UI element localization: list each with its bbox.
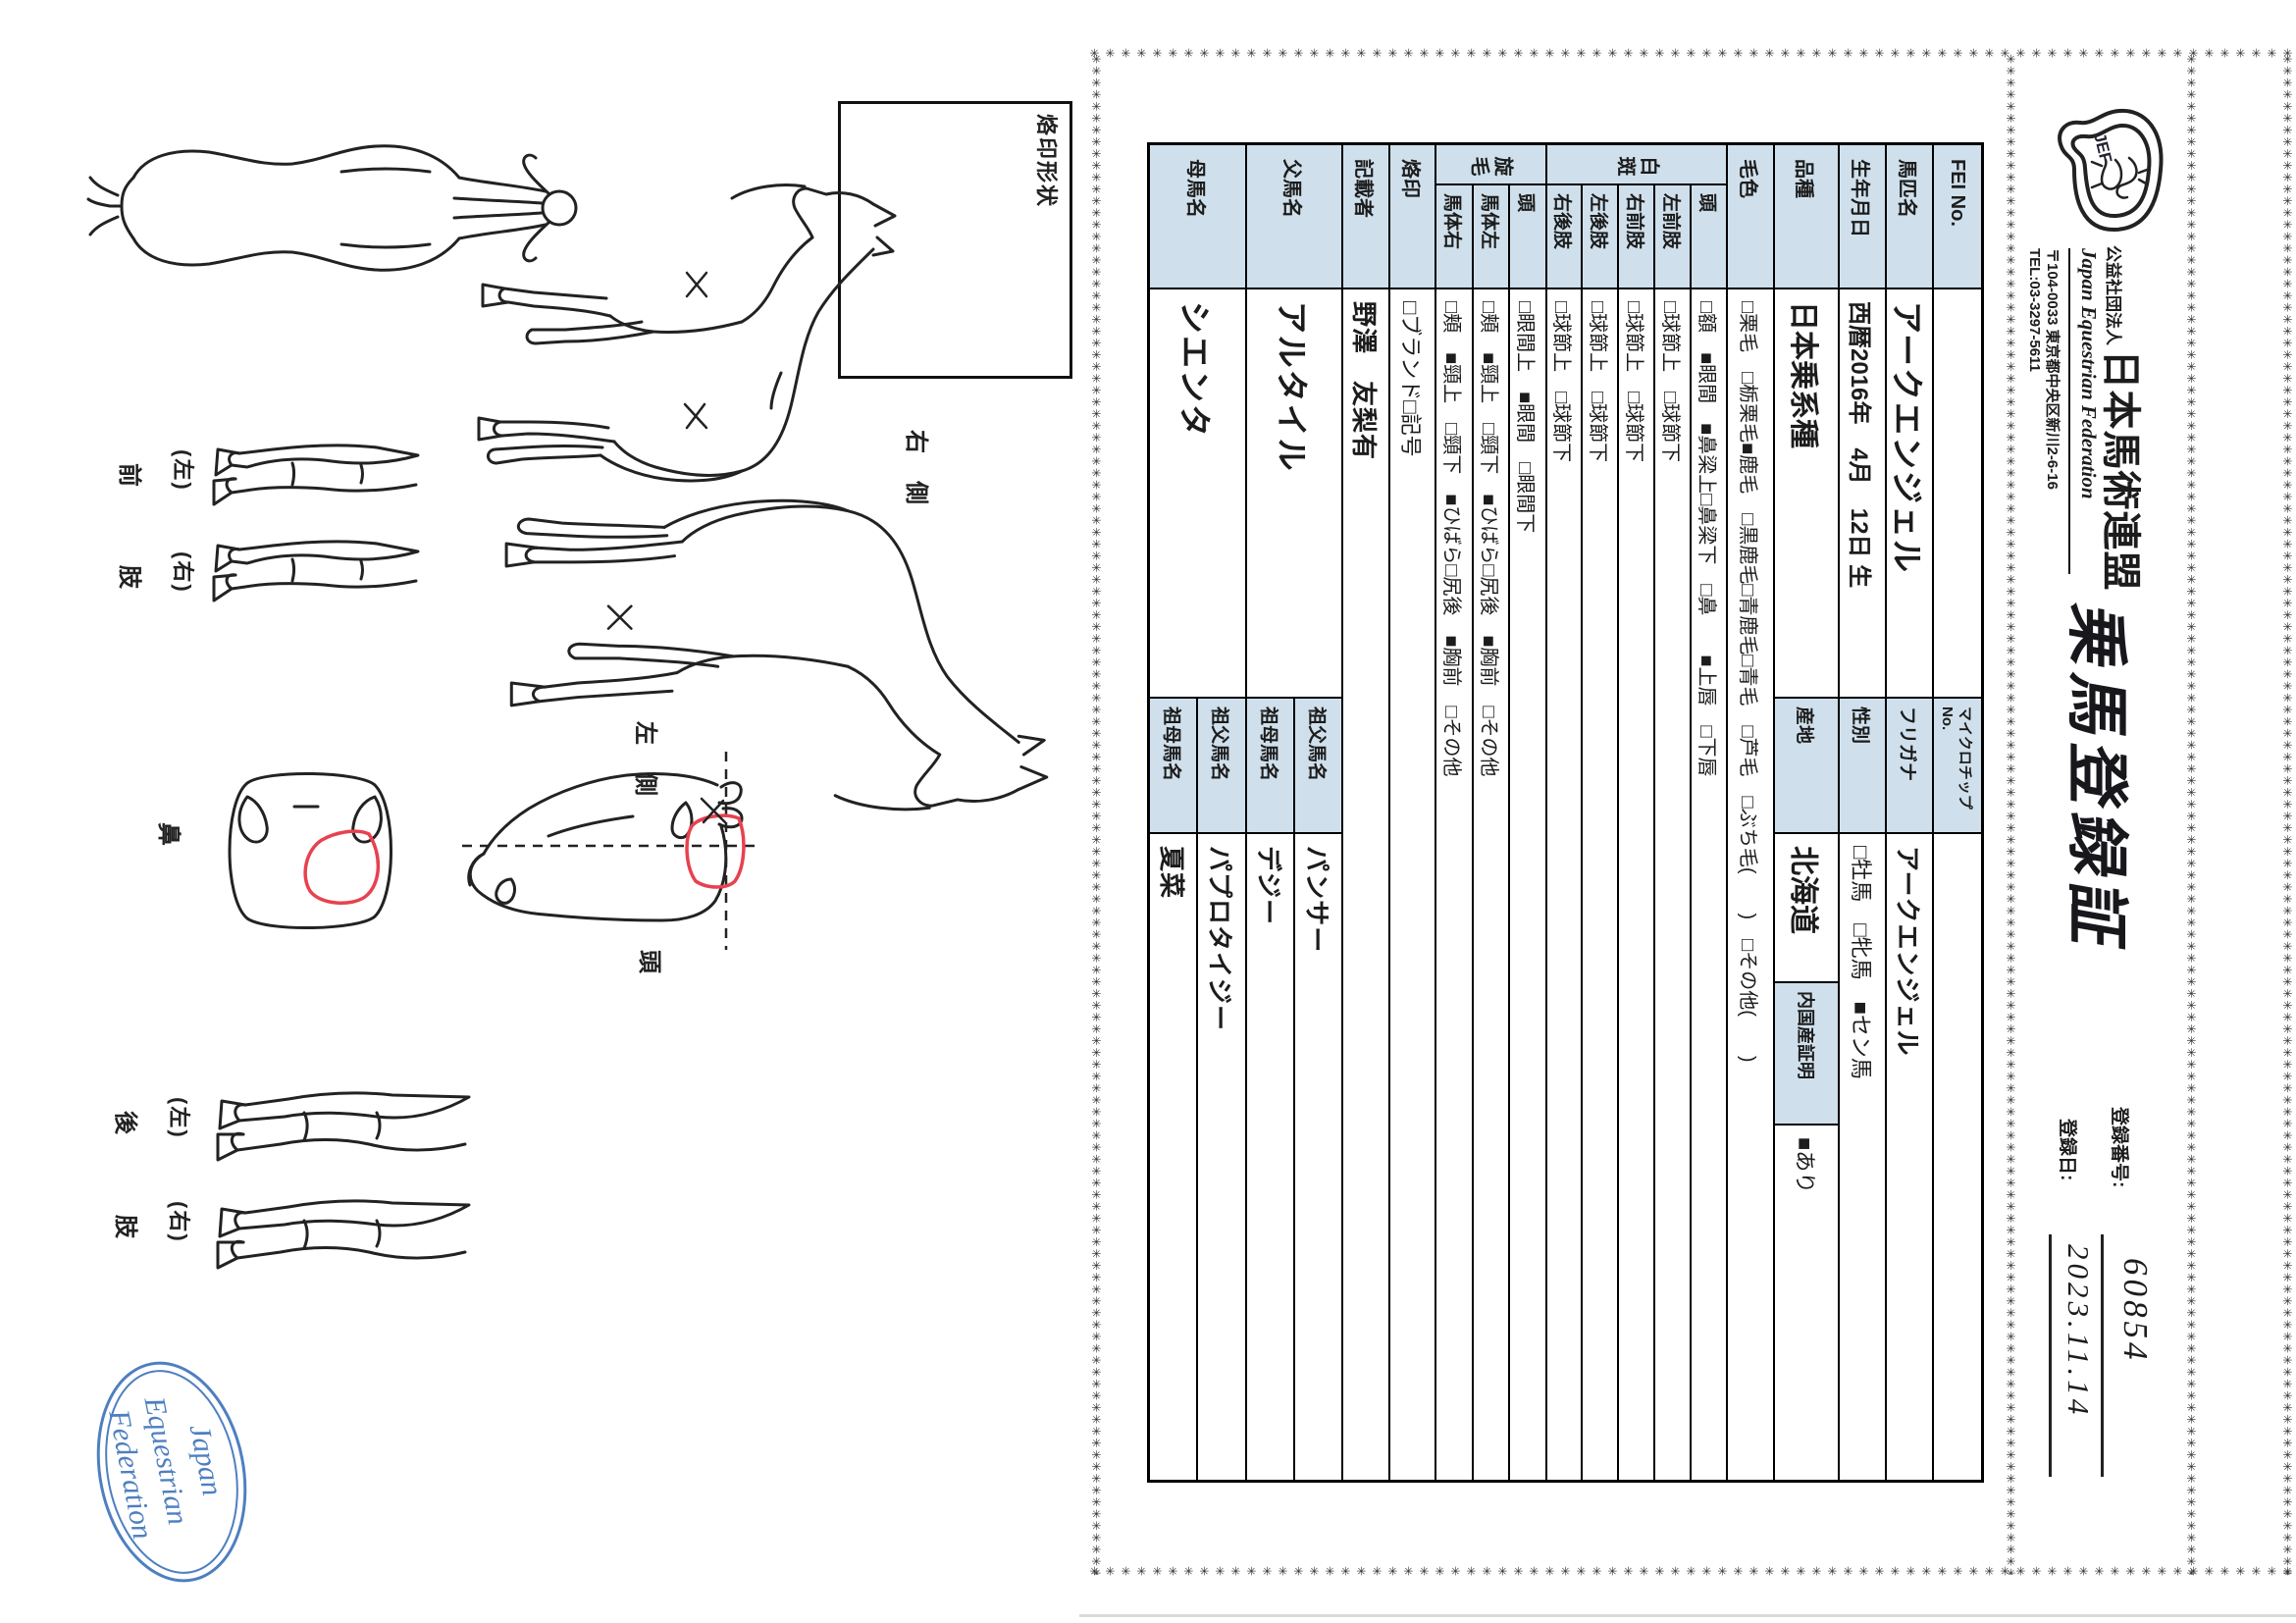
registration-number-value: 60854 bbox=[2115, 1258, 2155, 1364]
border-asterisk-left: ✳✳✳✳✳✳✳✳✳✳✳✳✳✳✳✳✳✳✳✳✳✳✳✳✳✳✳✳✳✳✳✳✳✳✳✳✳✳✳✳… bbox=[1089, 45, 2294, 60]
white-markings-section-label: 白斑 bbox=[1547, 145, 1728, 183]
paternal-grandsire-label: 祖父馬名 bbox=[1295, 697, 1343, 832]
microchip-label: マイクロチップNo. bbox=[1934, 697, 1981, 832]
breed-value: 日本乗系種 bbox=[1775, 288, 1840, 697]
border-asterisk-top: ✳✳✳✳✳✳✳✳✳✳✳✳✳✳✳✳✳✳✳✳✳✳✳✳✳✳✳✳✳✳✳✳✳✳✳✳✳✳✳✳… bbox=[2279, 54, 2294, 1575]
coat-color-value: □栗毛 □栃栗毛■鹿毛 □黒鹿毛□青鹿毛□青毛 □芦毛 □ぶち毛( ) □その他… bbox=[1728, 288, 1775, 1480]
registration-number-underline bbox=[2101, 1234, 2104, 1477]
markings-left-hind-value: □球節上 □球節下 bbox=[1583, 288, 1619, 1480]
hind-limb-label-char1: 後 bbox=[111, 1111, 145, 1136]
border-asterisk-right: ✳✳✳✳✳✳✳✳✳✳✳✳✳✳✳✳✳✳✳✳✳✳✳✳✳✳✳✳✳✳✳✳✳✳✳✳✳✳✳✳… bbox=[1089, 1563, 2294, 1578]
registration-date-label: 登録日: bbox=[2056, 1119, 2082, 1180]
front-leg-left-paren-label: (左) bbox=[169, 449, 200, 492]
front-legs-figure bbox=[199, 442, 420, 618]
maternal-granddam-value: 夏菜 bbox=[1150, 832, 1198, 1480]
letterhead-rule bbox=[2068, 248, 2070, 574]
whorl-body-right-value: □頬 ■頸上 □頸下 ■ひばら□尻後 ■胸前 □その他 bbox=[1436, 288, 1474, 1480]
certificate-title: 乗馬登録証 bbox=[2057, 599, 2147, 963]
markings-right-fore-label: 右前肢 bbox=[1619, 183, 1655, 288]
stamp-line1: Japan bbox=[183, 1422, 229, 1498]
hind-legs-figure bbox=[198, 1087, 471, 1283]
maternal-granddam-label: 祖母馬名 bbox=[1150, 697, 1198, 832]
brand-value: □ブランド□記号 bbox=[1390, 288, 1436, 1480]
brand-label: 烙印 bbox=[1390, 145, 1436, 288]
whorl-body-left-value: □頬 ■頸上 □頸下 ■ひばら□尻後 ■胸前 □その他 bbox=[1474, 288, 1510, 1480]
jef-oval-stamp: Japan Equestrian Federation bbox=[74, 1343, 270, 1600]
microchip-value bbox=[1934, 832, 1981, 1480]
whorl-body-left-label: 馬体左 bbox=[1474, 183, 1510, 288]
origin-value: 北海道 bbox=[1775, 832, 1840, 981]
org-name-line: 公益社団法人 日本馬術連盟 bbox=[2096, 245, 2153, 591]
org-tel: TEL:03-3297-5611 bbox=[2026, 248, 2043, 372]
right-side-view-horse-figure bbox=[472, 147, 899, 486]
paternal-granddam-label: 祖母馬名 bbox=[1247, 697, 1295, 832]
head-side-view-figure bbox=[456, 758, 751, 944]
head-diagram-label: 頭 bbox=[635, 950, 669, 975]
brand-shape-label: 烙印形状 bbox=[1032, 114, 1064, 208]
front-leg-right-paren-label: (右) bbox=[169, 551, 200, 594]
domestic-proof-value: ■あり bbox=[1775, 1124, 1840, 1480]
paternal-granddam-value: デジー bbox=[1247, 832, 1295, 1480]
jef-logo-text: JEF bbox=[2090, 131, 2115, 165]
horse-name-value: アークエンジェル bbox=[1887, 288, 1934, 697]
horse-data-table: FEI No. マイクロチップNo. 馬匹名 アークエンジェル フリガナ アーク… bbox=[1147, 142, 1984, 1483]
org-name: 日本馬術連盟 bbox=[2099, 349, 2142, 591]
whorl-head-value: □眼間上 ■眼間 □眼間下 bbox=[1510, 288, 1547, 1480]
paternal-grandsire-value: パンサー bbox=[1295, 832, 1343, 1480]
recorder-label: 記載者 bbox=[1343, 145, 1390, 288]
birthdate-label: 生年月日 bbox=[1840, 145, 1887, 288]
org-name-english: Japan Equestrian Federation bbox=[2076, 248, 2101, 499]
markings-right-hind-value: □球節上 □球節下 bbox=[1547, 288, 1583, 1480]
nose-diagram-label: 鼻 bbox=[154, 822, 188, 848]
origin-label: 産地 bbox=[1775, 697, 1840, 832]
markings-head-label: 頭 bbox=[1692, 183, 1728, 288]
markings-right-fore-value: □球節上 □球節下 bbox=[1619, 288, 1655, 1480]
markings-head-value: □額 ■眼間 ■鼻梁上□鼻梁下 □鼻 ■上唇 □下唇 bbox=[1692, 288, 1728, 1480]
furigana-value: アークエンジェル bbox=[1887, 832, 1934, 1480]
registration-date-underline bbox=[2049, 1234, 2052, 1477]
hind-leg-right-paren-label: (右) bbox=[165, 1201, 196, 1243]
markings-right-hind-label: 右後肢 bbox=[1547, 183, 1583, 288]
whorl-body-right-label: 馬体右 bbox=[1436, 183, 1474, 288]
border-asterisk-bottom: ✳✳✳✳✳✳✳✳✳✳✳✳✳✳✳✳✳✳✳✳✳✳✳✳✳✳✳✳✳✳✳✳✳✳✳✳✳✳✳✳… bbox=[1088, 54, 1103, 1575]
registration-date-value: 2023.11.14 bbox=[2061, 1244, 2096, 1418]
markings-left-fore-value: □球節上 □球節下 bbox=[1655, 288, 1692, 1480]
sex-value: □牡馬 □牝馬 ■セン馬 bbox=[1840, 832, 1887, 1480]
org-address: 〒104-0033 東京都中央区新川2-6-16 bbox=[2043, 248, 2063, 490]
whorl-head-label: 頭 bbox=[1510, 183, 1547, 288]
coat-color-label: 毛色 bbox=[1728, 145, 1775, 288]
breed-label: 品種 bbox=[1775, 145, 1840, 288]
maternal-grandsire-value: パプロタイジー bbox=[1198, 832, 1247, 1480]
dam-value: シエンタ bbox=[1150, 288, 1247, 697]
birthdate-value: 西暦2016年 4月 12日 生 bbox=[1840, 288, 1887, 697]
recorder-value: 野澤 友梨有 bbox=[1343, 288, 1390, 1480]
fei-no-value bbox=[1934, 288, 1981, 697]
horse-name-label: 馬匹名 bbox=[1887, 145, 1934, 288]
maternal-grandsire-label: 祖父馬名 bbox=[1198, 697, 1247, 832]
registration-number-label: 登録番号: bbox=[2108, 1107, 2134, 1187]
dam-label: 母馬名 bbox=[1150, 145, 1247, 288]
markings-left-fore-label: 左前肢 bbox=[1655, 183, 1692, 288]
fei-no-label: FEI No. bbox=[1934, 145, 1981, 288]
whorls-section-label: 旋毛 bbox=[1436, 145, 1547, 183]
markings-left-hind-label: 左後肢 bbox=[1583, 183, 1619, 288]
muzzle-front-view-figure bbox=[212, 758, 404, 944]
org-type-label: 公益社団法人 bbox=[2104, 245, 2122, 345]
scan-edge-shadow bbox=[1079, 1614, 2296, 1617]
border-asterisk-under-top: ✳✳✳✳✳✳✳✳✳✳✳✳✳✳✳✳✳✳✳✳✳✳✳✳✳✳✳✳✳✳✳✳✳✳✳✳✳✳✳✳… bbox=[2183, 54, 2198, 1575]
sire-label: 父馬名 bbox=[1247, 145, 1343, 288]
border-asterisk-under-header: ✳✳✳✳✳✳✳✳✳✳✳✳✳✳✳✳✳✳✳✳✳✳✳✳✳✳✳✳✳✳✳✳✳✳✳✳✳✳✳✳… bbox=[2003, 54, 2017, 1575]
sire-value: アルタイル bbox=[1247, 288, 1343, 697]
sex-label: 性別 bbox=[1840, 697, 1887, 832]
certificate-portrait-layout: ✳✳✳✳✳✳✳✳✳✳✳✳✳✳✳✳✳✳✳✳✳✳✳✳✳✳✳✳✳✳✳✳✳✳✳✳✳✳✳✳… bbox=[0, 0, 2296, 1623]
scanned-certificate-page: ✳✳✳✳✳✳✳✳✳✳✳✳✳✳✳✳✳✳✳✳✳✳✳✳✳✳✳✳✳✳✳✳✳✳✳✳✳✳✳✳… bbox=[0, 0, 2296, 1623]
jef-logo: JEF bbox=[2034, 101, 2166, 238]
hind-leg-left-paren-label: (左) bbox=[165, 1097, 196, 1139]
domestic-proof-label: 内国産証明 bbox=[1775, 981, 1840, 1124]
front-limb-label-char2: 肢 bbox=[115, 565, 149, 591]
front-limb-label-char1: 前 bbox=[115, 463, 149, 489]
hind-limb-label-char2: 肢 bbox=[111, 1215, 145, 1240]
furigana-label: フリガナ bbox=[1887, 697, 1934, 832]
